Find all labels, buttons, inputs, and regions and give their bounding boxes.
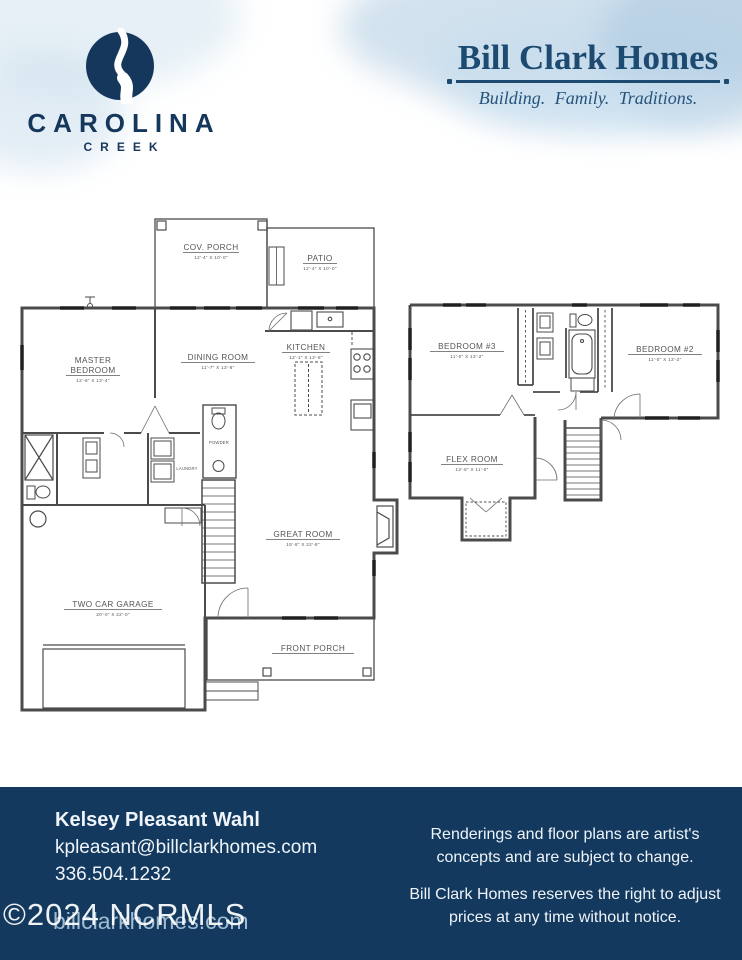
room-label-patio: PATIO xyxy=(307,254,332,263)
flex-closet-interior xyxy=(466,502,506,536)
water-heater xyxy=(30,511,46,527)
builder-logo: Bill Clark Homes Building. Family. Tradi… xyxy=(452,38,724,109)
room-label-laundry: LAUNDRY xyxy=(176,466,197,471)
interior-walls-2 xyxy=(410,308,718,418)
room-label-bedroom3: BEDROOM #3 xyxy=(438,342,496,351)
staircase-2 xyxy=(565,428,601,500)
room-dims-bedroom2: 11'-0" X 13'-2" xyxy=(648,357,681,362)
door-swings-2 xyxy=(470,392,640,512)
shower-fixture xyxy=(25,435,53,480)
disclaimer-line-2: Bill Clark Homes reserves the right to a… xyxy=(399,883,731,929)
room-label-kitchen: KITCHEN xyxy=(287,343,326,352)
porch-post xyxy=(157,221,166,230)
builder-tagline: Building. Family. Traditions. xyxy=(452,88,724,109)
footer: Kelsey Pleasant Wahl kpleasant@billclark… xyxy=(0,787,742,960)
room-label-master-1: MASTER xyxy=(75,356,112,365)
mud-step xyxy=(165,508,201,523)
room-dims-garage: 20'-0" X 22'-0" xyxy=(96,612,130,617)
floor-plan-drawing: COV. PORCH 12'-4" X 10'-0" PATIO 12'-4" … xyxy=(0,200,742,780)
garage-door xyxy=(43,645,185,708)
agent-contact-block: Kelsey Pleasant Wahl kpleasant@billclark… xyxy=(55,807,317,888)
room-dims-bedroom3: 11'-0" X 13'-2" xyxy=(450,354,483,359)
room-label-great-room: GREAT ROOM xyxy=(273,530,332,539)
room-dims-cov-porch: 12'-4" X 10'-0" xyxy=(194,255,228,260)
room-label-bedroom2: BEDROOM #2 xyxy=(636,345,694,354)
kitchen-fixtures xyxy=(291,311,374,430)
room-dims-kitchen: 12'-1" X 13'-8" xyxy=(289,355,323,360)
toilet-fixture xyxy=(570,314,592,327)
builder-name: Bill Clark Homes xyxy=(452,38,724,78)
ncrmls-watermark: ©2024 NCRMLS xyxy=(3,897,246,933)
room-label-master-2: BEDROOM xyxy=(70,366,115,375)
label-underlines xyxy=(64,253,354,654)
staircase xyxy=(202,480,235,583)
room-label-garage: TWO CAR GARAGE xyxy=(72,600,154,609)
room-label-dining: DINING ROOM xyxy=(188,353,249,362)
builder-rule xyxy=(456,80,720,83)
flyer-page: CAROLINA CREEK Bill Clark Homes Building… xyxy=(0,0,742,960)
room-label-cov-porch: COV. PORCH xyxy=(183,243,238,252)
community-subname: CREEK xyxy=(18,140,223,154)
agent-name: Kelsey Pleasant Wahl xyxy=(55,807,317,834)
floor-plan-second: BEDROOM #3 11'-0" X 13'-2" BEDROOM #2 11… xyxy=(410,305,718,540)
carolina-creek-river-icon xyxy=(82,28,158,104)
disclaimer-line-1: Renderings and floor plans are artist's … xyxy=(399,823,731,869)
vanity-fixture xyxy=(83,438,100,478)
porch-post xyxy=(363,668,371,676)
community-name: CAROLINA xyxy=(18,108,223,139)
bathtub-fixture xyxy=(569,330,595,378)
room-dims-flex: 13'-8" X 11'-0" xyxy=(455,467,488,472)
linen-closet xyxy=(571,378,594,391)
cov-porch-outline xyxy=(155,219,267,308)
fireplace xyxy=(377,506,393,547)
exterior-walls-2 xyxy=(410,305,718,540)
room-dims-great-room: 15'-8" X 22'-8" xyxy=(286,542,320,547)
porch-post xyxy=(263,668,271,676)
toilet-fixture xyxy=(27,486,50,499)
floor-plan-first: COV. PORCH 12'-4" X 10'-0" PATIO 12'-4" … xyxy=(22,219,397,710)
room-dims-patio: 12'-4" X 10'-0" xyxy=(303,266,337,271)
disclaimer-block: Renderings and floor plans are artist's … xyxy=(399,823,731,943)
room-label-flex: FLEX ROOM xyxy=(446,455,498,464)
room-dims-dining: 11'-7" X 13'-8" xyxy=(201,365,234,370)
agent-email: kpleasant@billclarkhomes.com xyxy=(55,834,317,861)
room-dims-master: 12'-8" X 13'-4" xyxy=(76,378,110,383)
porch-steps xyxy=(206,682,258,700)
bath-vanity-fixture xyxy=(537,313,553,359)
agent-phone: 336.504.1232 xyxy=(55,861,317,888)
room-label-powder: POWDER xyxy=(209,440,229,445)
washer-dryer-fixture xyxy=(151,438,174,482)
room-label-front-porch: FRONT PORCH xyxy=(281,644,345,653)
porch-post xyxy=(258,221,267,230)
